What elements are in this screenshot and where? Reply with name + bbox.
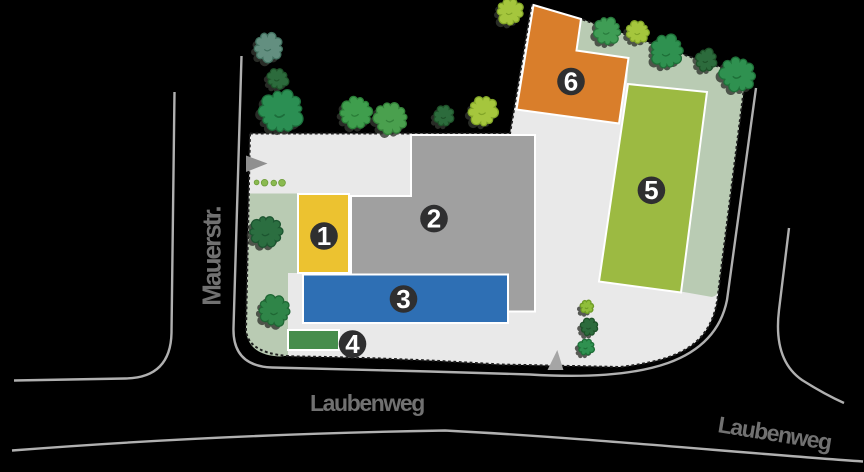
- svg-text:6: 6: [564, 66, 578, 96]
- svg-text:5: 5: [644, 175, 658, 205]
- svg-text:4: 4: [345, 329, 360, 359]
- svg-text:3: 3: [396, 284, 410, 314]
- svg-text:Mauerstr.: Mauerstr.: [197, 207, 227, 306]
- svg-text:Laubenweg: Laubenweg: [310, 390, 424, 416]
- svg-text:2: 2: [427, 203, 441, 233]
- svg-text:1: 1: [317, 221, 331, 251]
